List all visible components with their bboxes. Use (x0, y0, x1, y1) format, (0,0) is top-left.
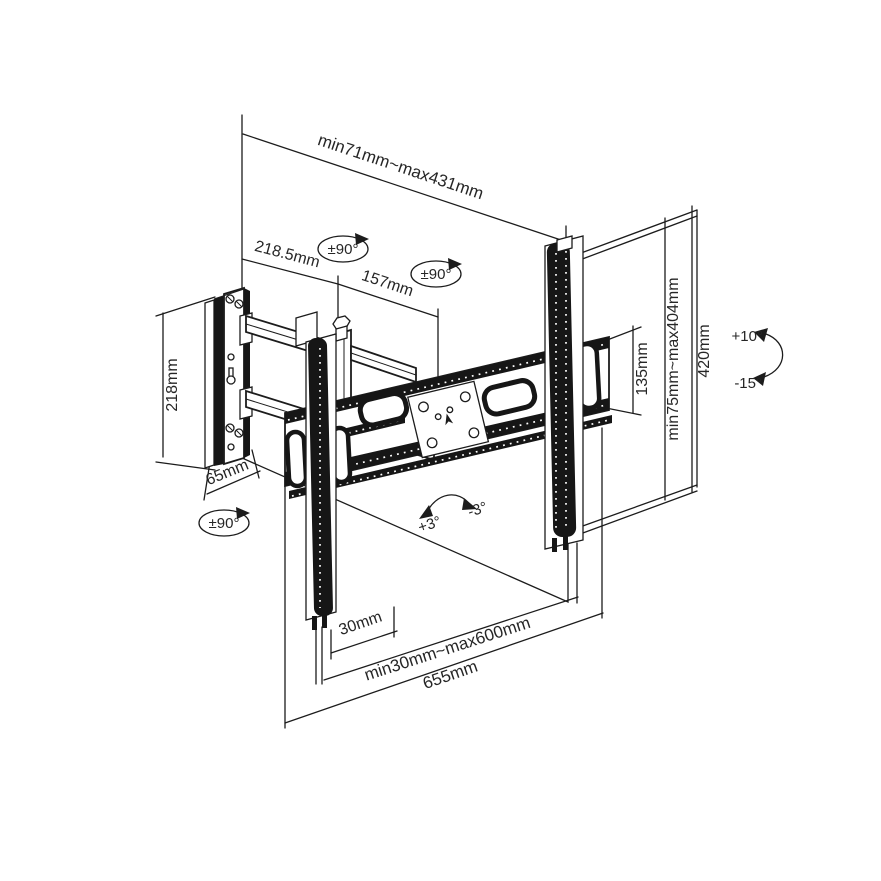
diagram-canvas: min71mm~max431mm 218.5mm 157mm 218mm 65m… (0, 0, 881, 881)
dim-rail-height: 420mm (692, 206, 713, 492)
vesa-height-range-label: min75mm~max404mm (665, 277, 682, 440)
dim-rail-bottom-offset: 30mm (331, 607, 397, 659)
tilt-indicator: +10° -15° (732, 328, 783, 392)
right-rail (545, 236, 583, 552)
arm-offset-label: 157mm (359, 267, 415, 300)
roll-plus-label: +3° (416, 513, 443, 536)
tilt-up-label: +10° (732, 328, 763, 345)
wall-mount-diagram: min71mm~max431mm 218.5mm 157mm 218mm 65m… (0, 0, 881, 881)
wall-plate-height-label: 218mm (164, 358, 181, 411)
swivel-indicator-bottom-left: ±90° (199, 507, 250, 536)
swivel-label: ±90° (328, 241, 359, 258)
swivel-label: ±90° (421, 266, 452, 283)
arm-segment-label: 218.5mm (253, 238, 322, 271)
bracket-profile-height-label: 135mm (634, 342, 651, 395)
wall-plate (205, 288, 252, 468)
swivel-label: ±90° (209, 515, 240, 532)
roll-indicator: +3° -3° (416, 495, 489, 536)
swivel-indicator-top-left: ±90° (318, 233, 369, 262)
dim-vesa-height-range: min75mm~max404mm (665, 218, 682, 500)
dim-extension-range: min71mm~max431mm (243, 130, 566, 254)
swivel-indicator-top-right: ±90° (411, 258, 462, 287)
tilt-down-label: -15° (734, 375, 762, 392)
dim-vesa-width-range: min30mm~max600mm (316, 543, 578, 685)
rail-bottom-offset-label: 30mm (337, 608, 385, 639)
roll-minus-label: -3° (466, 499, 490, 521)
rail-height-label: 420mm (696, 324, 713, 377)
cutout-slot (287, 432, 307, 487)
